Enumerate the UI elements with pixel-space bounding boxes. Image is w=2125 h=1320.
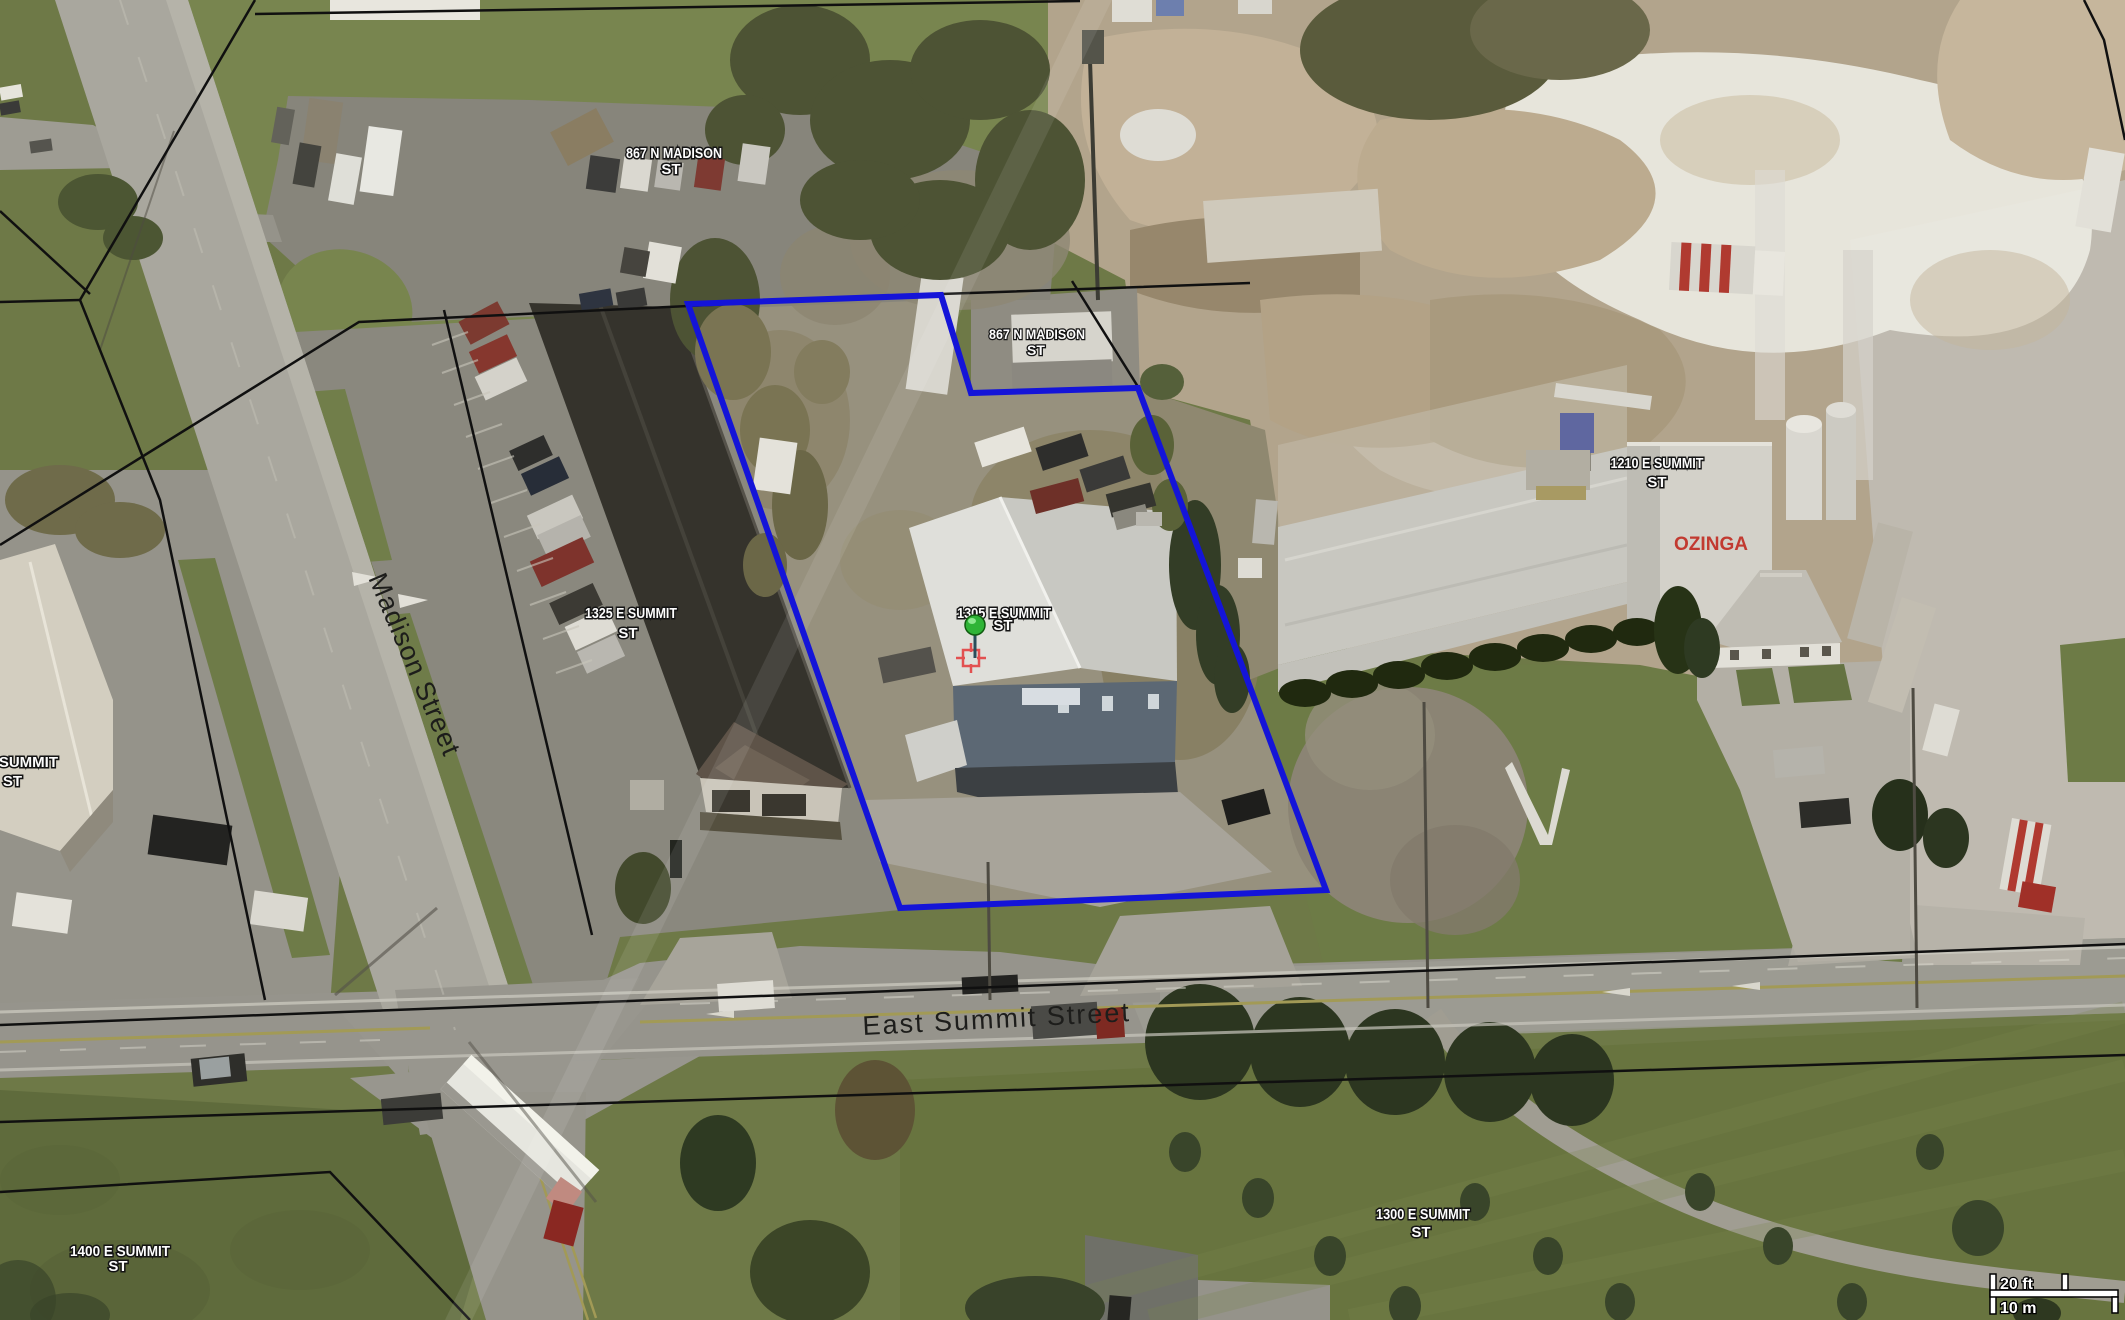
svg-text:ST: ST	[993, 617, 1012, 634]
svg-text:1325 E SUMMIT: 1325 E SUMMIT	[585, 605, 677, 622]
svg-text:867 N MADISON: 867 N MADISON	[626, 145, 722, 162]
svg-text:20 ft: 20 ft	[2000, 1276, 2034, 1293]
svg-text:E SUMMIT: E SUMMIT	[0, 754, 58, 771]
svg-text:1210 E SUMMIT: 1210 E SUMMIT	[1611, 455, 1704, 472]
svg-text:10 m: 10 m	[2000, 1300, 2036, 1317]
svg-text:ST: ST	[1027, 342, 1045, 358]
svg-text:ST: ST	[1647, 474, 1666, 491]
svg-text:OZINGA: OZINGA	[1674, 534, 1748, 555]
svg-text:ST: ST	[661, 161, 680, 178]
svg-text:ST: ST	[1411, 1224, 1430, 1241]
svg-text:ST: ST	[618, 625, 637, 642]
svg-text:ST: ST	[108, 1258, 127, 1275]
svg-text:ST: ST	[3, 773, 22, 790]
svg-text:867 N MADISON: 867 N MADISON	[989, 326, 1085, 342]
svg-text:1300 E SUMMIT: 1300 E SUMMIT	[1376, 1206, 1470, 1223]
